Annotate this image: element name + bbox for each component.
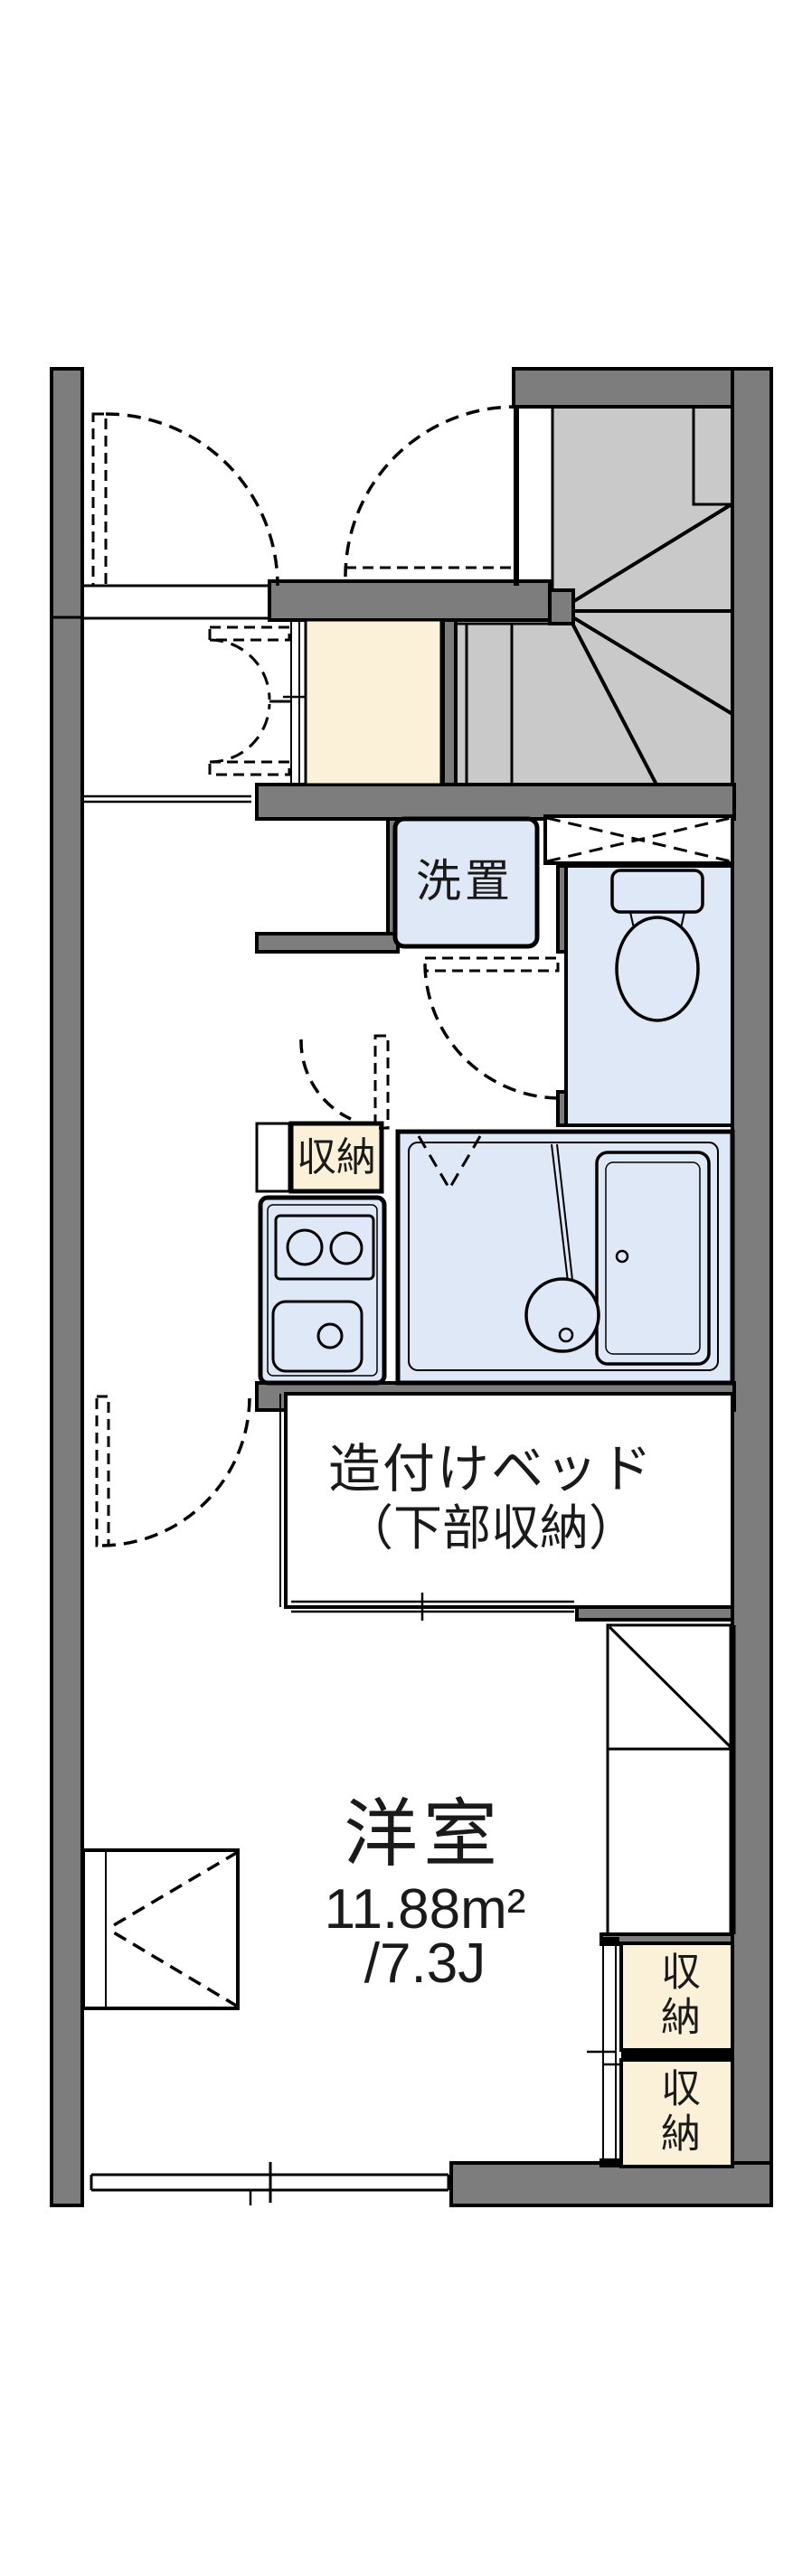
washer-space-label: 洗置 <box>416 859 514 904</box>
overhead-shelf <box>545 816 732 863</box>
staircase-landing-notch <box>694 407 732 504</box>
wall-entry-band <box>269 581 550 620</box>
room-area-tatami-label: /7.3J <box>364 1936 486 1992</box>
entry-door-swing <box>345 407 515 577</box>
room-door-swing <box>102 1396 250 1546</box>
entry-left-door-swing <box>106 414 278 586</box>
toilet-floor <box>566 866 732 1125</box>
kitchen-storage-side <box>257 1123 289 1191</box>
washroom-door-swing <box>425 964 558 1098</box>
room-door-leaf <box>97 1396 109 1546</box>
wall-washroom-stub <box>257 934 398 952</box>
wall-left <box>52 369 82 2205</box>
washroom-door-leaf <box>425 958 558 971</box>
entry-door-leaf <box>345 568 515 581</box>
bottom-window <box>91 2162 448 2205</box>
fold-door-leaf <box>375 1036 388 1128</box>
wall-stair-step <box>550 590 573 624</box>
floor-plan: 洗置 収納 造付けベッド （下部収納） 洋室 11.88m² /7.3J 収納 … <box>0 0 812 2576</box>
bathroom <box>398 1132 732 1383</box>
wall-mid-band <box>257 785 734 819</box>
built-in-bed-label-line2: （下部収納） <box>345 1504 637 1553</box>
kitchen-counter <box>260 1198 384 1383</box>
kitchen-storage-label: 収納 <box>297 1138 376 1178</box>
fold-door-swing <box>301 1039 351 1119</box>
room-area-sqm-label: 11.88m² <box>325 1882 526 1938</box>
storage-upper-label: 収納 <box>656 1951 696 2041</box>
closet-door-leaf <box>210 627 289 640</box>
closet-door-swing <box>210 704 269 762</box>
kitchen <box>260 1198 384 1383</box>
closet-door-leaf <box>210 762 289 775</box>
genkan <box>283 620 441 785</box>
storage-jamb <box>600 2158 619 2167</box>
wall-bottom <box>451 2163 771 2205</box>
wall-right <box>732 369 771 2205</box>
closet-door-swing <box>210 640 269 700</box>
thresholds <box>82 586 269 802</box>
genkan-floor <box>306 620 441 785</box>
fold-counter <box>83 1850 238 2008</box>
storage-jamb <box>600 1937 619 1946</box>
refrigerator-space <box>608 1625 732 1934</box>
bed-area <box>286 1394 732 1607</box>
wall-genkan-right <box>443 620 456 788</box>
built-in-bed-label-line1: 造付けベッド <box>328 1443 654 1496</box>
toilet-room <box>566 866 732 1125</box>
entry-left-door-leaf <box>93 414 106 586</box>
storage-lower-label: 収納 <box>656 2067 696 2158</box>
room-name-label: 洋室 <box>344 1798 503 1872</box>
floor-plan-drawing <box>0 0 812 2576</box>
